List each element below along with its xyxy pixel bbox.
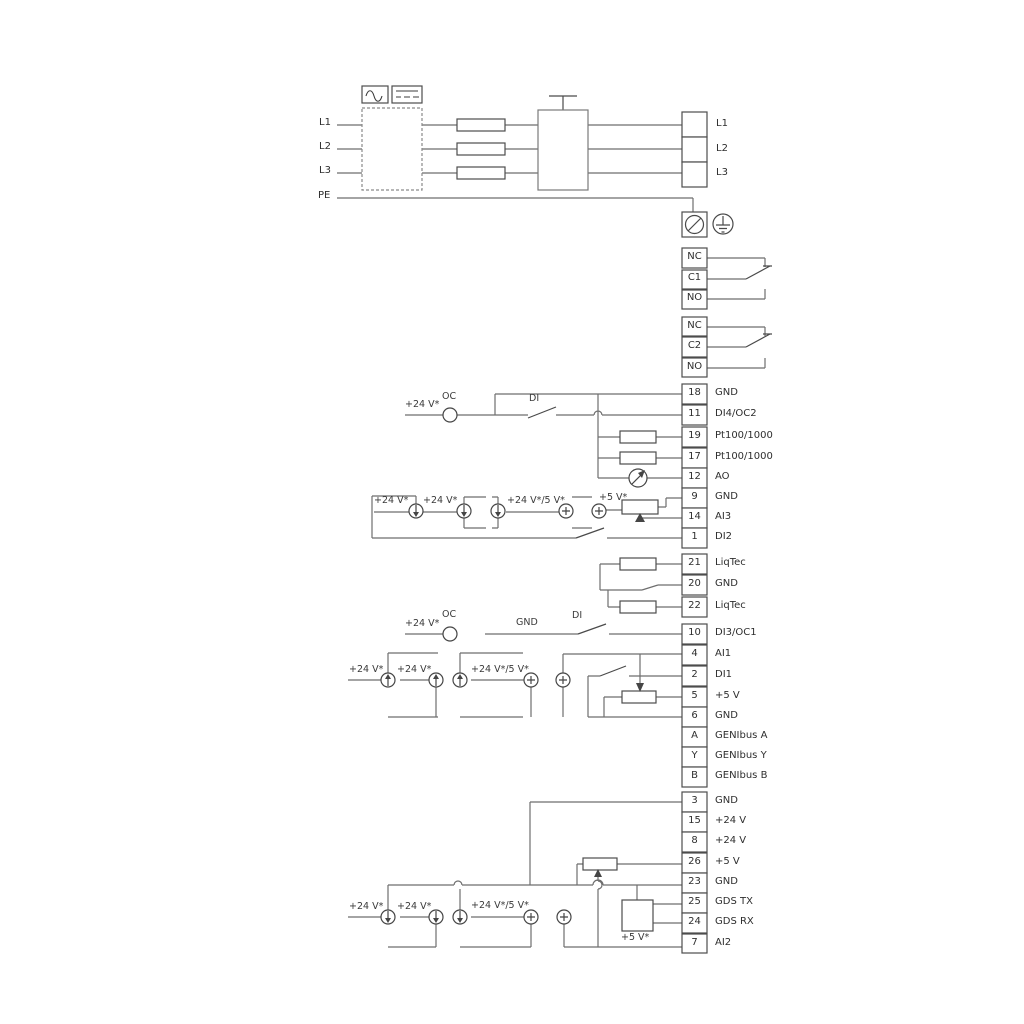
relay2-c2: C2 xyxy=(682,340,707,351)
terminal-21-label: LiqTec xyxy=(715,557,746,568)
terminal-L1-label: L1 xyxy=(716,118,728,129)
terminal-25-number: 25 xyxy=(682,896,707,907)
terminal-8-label: +24 V xyxy=(715,835,746,846)
terminal-9-label: GND xyxy=(715,491,738,502)
annotation-24v-di3: +24 V* xyxy=(405,618,439,629)
terminal-26-number: 26 xyxy=(682,856,707,867)
di2-switch-blade xyxy=(576,528,604,538)
terminal-Y-label: GENIbus Y xyxy=(715,750,767,761)
pt100-resistor-19 xyxy=(620,431,656,443)
annotation-5v-ai3: +5 V* xyxy=(599,492,627,503)
di4-switch-blade xyxy=(528,407,556,418)
terminal-B-number: B xyxy=(682,770,707,781)
annotation-24v-ai2-2: +24 V* xyxy=(397,901,431,912)
terminal-1-number: 1 xyxy=(682,531,707,542)
ai1-source-symbols xyxy=(381,673,644,692)
power-terminal-block xyxy=(682,112,707,187)
terminal-25-label: GDS TX xyxy=(715,896,753,907)
terminal-6-number: 6 xyxy=(682,710,707,721)
terminal-7-number: 7 xyxy=(682,937,707,948)
relay1-no: NO xyxy=(682,292,707,303)
terminal-11-number: 11 xyxy=(682,408,707,419)
annotation-oc-di4: OC xyxy=(442,391,456,402)
ai2-source-symbols xyxy=(381,869,602,924)
terminal-26-label: +5 V xyxy=(715,856,740,867)
annotation-oc-di3: OC xyxy=(442,609,456,620)
relay2-wiring xyxy=(707,327,765,368)
terminal-8-number: 8 xyxy=(682,835,707,846)
pt100-resistor-17 xyxy=(620,452,656,464)
annotation-24v-ai3-2: +24 V* xyxy=(423,495,457,506)
terminal-A-label: GENIbus A xyxy=(715,730,767,741)
terminal-2-label: DI1 xyxy=(715,669,732,680)
mains-label-l2: L2 xyxy=(319,141,331,152)
oc-circle-di4 xyxy=(443,408,457,422)
di1-switch-blade xyxy=(600,666,626,676)
terminal-22-label: LiqTec xyxy=(715,600,746,611)
earth-symbol xyxy=(713,214,733,234)
terminal-10-label: DI3/OC1 xyxy=(715,627,757,638)
terminal-2-number: 2 xyxy=(682,669,707,680)
annotation-24v-ai1-1: +24 V* xyxy=(349,664,383,675)
terminal-3-number: 3 xyxy=(682,795,707,806)
main-switch-box xyxy=(538,110,588,190)
terminal-24-number: 24 xyxy=(682,916,707,927)
relay2-nc: NC xyxy=(682,320,707,331)
di3-switch-blade xyxy=(578,624,606,634)
relay1-blade xyxy=(746,266,772,279)
terminal-18-number: 18 xyxy=(682,387,707,398)
terminal-Y-number: Y xyxy=(682,750,707,761)
wiring-lines xyxy=(0,0,1024,1024)
terminal-1-label: DI2 xyxy=(715,531,732,542)
ai3-source-symbols xyxy=(409,504,645,522)
terminal-14-number: 14 xyxy=(682,511,707,522)
terminal-7-label: AI2 xyxy=(715,937,731,948)
ao-meter-symbol xyxy=(629,469,647,487)
fuse-l3 xyxy=(457,167,505,179)
terminal-19-label: Pt100/1000 xyxy=(715,430,773,441)
liqtec-resistor-22 xyxy=(620,601,656,613)
dc-icon-box xyxy=(392,86,422,103)
terminal-17-label: Pt100/1000 xyxy=(715,451,773,462)
ac-icon-box xyxy=(362,86,388,103)
annotation-24v-di4: +24 V* xyxy=(405,399,439,410)
relay2-blade xyxy=(746,334,772,347)
terminal-15-label: +24 V xyxy=(715,815,746,826)
terminal-17-number: 17 xyxy=(682,451,707,462)
terminal-4-number: 4 xyxy=(682,648,707,659)
terminal-22-number: 22 xyxy=(682,600,707,611)
ai1-wiring xyxy=(348,653,682,717)
oc-circle-di3 xyxy=(443,627,457,641)
terminal-20-number: 20 xyxy=(682,578,707,589)
annotation-24v-5v-ai3: +24 V*/5 V* xyxy=(507,495,565,506)
annotation-5v-gds: +5 V* xyxy=(621,932,649,943)
wiring-diagram: L1 L2 L3 PE L1 L2 L3 NC C1 NO NC C2 NO 1… xyxy=(0,0,1024,1024)
terminal-15-number: 15 xyxy=(682,815,707,826)
ai1-potentiometer xyxy=(622,691,656,703)
mains-label-l3: L3 xyxy=(319,165,331,176)
terminal-L2-label: L2 xyxy=(716,143,728,154)
relay1-nc: NC xyxy=(682,251,707,262)
terminal-23-label: GND xyxy=(715,876,738,887)
annotation-gnd-di3: GND xyxy=(516,617,538,628)
annotation-24v-ai3-1: +24 V* xyxy=(374,495,408,506)
annotation-24v-ai2-1: +24 V* xyxy=(349,901,383,912)
converter-dashed-box xyxy=(362,108,422,190)
terminal-20-label: GND xyxy=(715,578,738,589)
terminal-24-label: GDS RX xyxy=(715,916,754,927)
terminal-A-number: A xyxy=(682,730,707,741)
mains-label-l1: L1 xyxy=(319,117,331,128)
terminal-19-number: 19 xyxy=(682,430,707,441)
terminal-5-label: +5 V xyxy=(715,690,740,701)
annotation-di-di3: DI xyxy=(572,610,582,621)
fuse-l1 xyxy=(457,119,505,131)
annotation-24v-5v-ai1: +24 V*/5 V* xyxy=(471,664,529,675)
mains-label-pe: PE xyxy=(318,190,330,201)
terminal-12-label: AO xyxy=(715,471,730,482)
terminal-9-number: 9 xyxy=(682,491,707,502)
terminal-4-label: AI1 xyxy=(715,648,731,659)
terminal-18-label: GND xyxy=(715,387,738,398)
terminal-14-label: AI3 xyxy=(715,511,731,522)
terminal-21-number: 21 xyxy=(682,557,707,568)
relay1-c1: C1 xyxy=(682,272,707,283)
terminal-10-number: 10 xyxy=(682,627,707,638)
terminal-11-label: DI4/OC2 xyxy=(715,408,757,419)
annotation-24v-ai1-2: +24 V* xyxy=(397,664,431,675)
terminal-23-number: 23 xyxy=(682,876,707,887)
terminal-B-label: GENIbus B xyxy=(715,770,767,781)
gds-sensor-box xyxy=(622,900,653,931)
terminal-3-label: GND xyxy=(715,795,738,806)
annotation-di-di4: DI xyxy=(529,393,539,404)
relay1-wiring xyxy=(707,258,765,299)
ai3-potentiometer xyxy=(622,500,658,514)
liqtec-resistor-21 xyxy=(620,558,656,570)
terminal-L3-label: L3 xyxy=(716,167,728,178)
relay2-no: NO xyxy=(682,361,707,372)
terminal-12-number: 12 xyxy=(682,471,707,482)
fuse-l2 xyxy=(457,143,505,155)
terminal-6-label: GND xyxy=(715,710,738,721)
terminal-5-number: 5 xyxy=(682,690,707,701)
annotation-24v-5v-ai2: +24 V*/5 V* xyxy=(471,900,529,911)
ai2-potentiometer xyxy=(583,858,617,870)
